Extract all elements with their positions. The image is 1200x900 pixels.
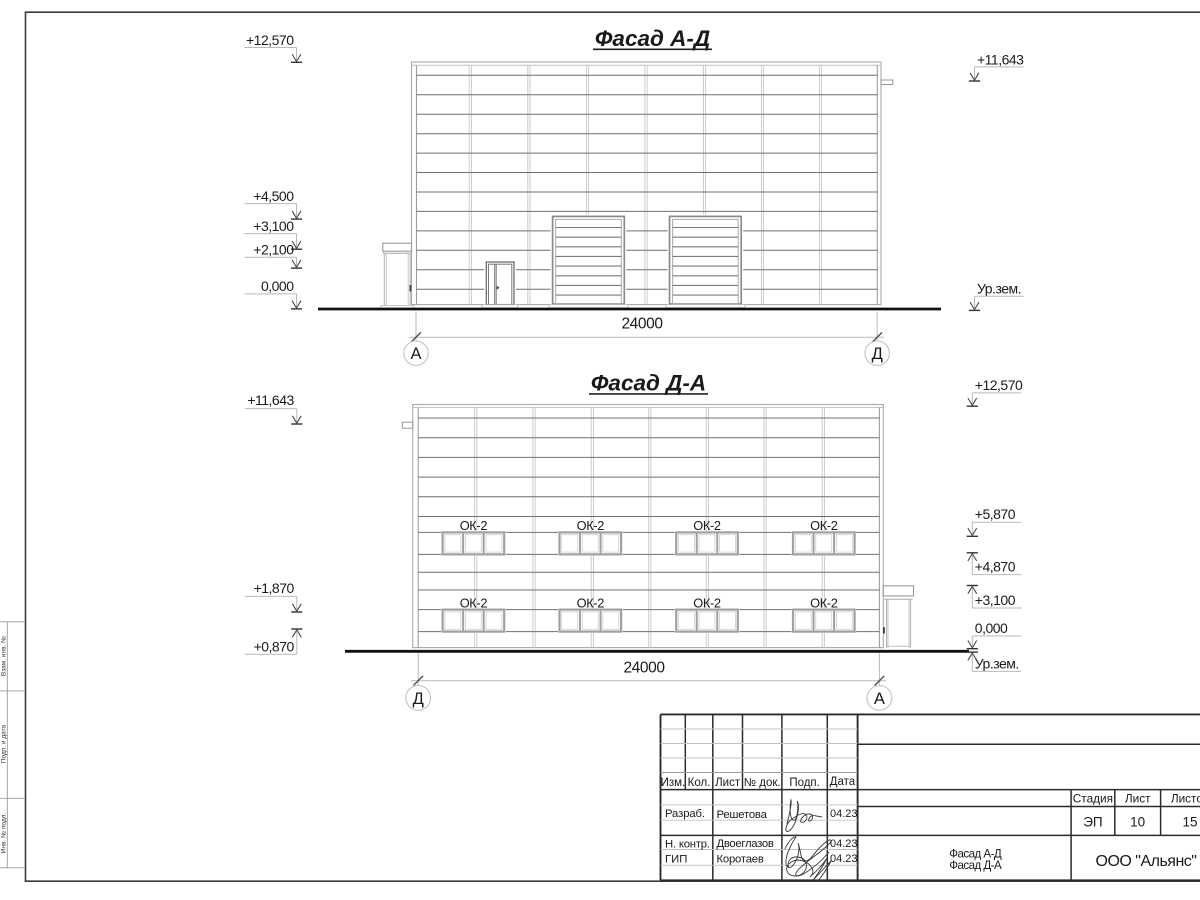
svg-text:+12,570: +12,570: [246, 32, 294, 48]
svg-text:Изм.: Изм.: [661, 777, 686, 789]
svg-text:+12,570: +12,570: [975, 377, 1023, 393]
svg-text:Ур.зем.: Ур.зем.: [977, 280, 1021, 296]
svg-text:Коротаев: Коротаев: [717, 853, 764, 865]
svg-text:ООО "Альянс": ООО "Альянс": [1096, 853, 1197, 870]
svg-text:0,000: 0,000: [261, 278, 294, 294]
svg-text:+11,643: +11,643: [977, 51, 1024, 67]
svg-text:Ур.зем.: Ур.зем.: [975, 655, 1019, 671]
svg-text:Подп. и дата: Подп. и дата: [1, 724, 8, 763]
svg-text:Взам. инв. №: Взам. инв. №: [1, 636, 8, 676]
svg-text:ОК-2: ОК-2: [693, 518, 721, 533]
svg-text:+4,500: +4,500: [253, 188, 294, 204]
svg-text:Д: Д: [872, 345, 883, 363]
svg-text:+3,100: +3,100: [975, 592, 1016, 608]
svg-text:+11,643: +11,643: [247, 392, 294, 408]
svg-text:Дата: Дата: [830, 776, 856, 788]
svg-text:ГИП: ГИП: [665, 853, 687, 865]
svg-text:Двоеглазов: Двоеглазов: [717, 838, 774, 850]
svg-text:+0,870: +0,870: [254, 639, 295, 655]
svg-text:ОК-2: ОК-2: [460, 596, 488, 611]
svg-text:А: А: [410, 345, 421, 363]
svg-text:ЭП: ЭП: [1083, 815, 1102, 830]
svg-text:Подп.: Подп.: [789, 777, 820, 789]
svg-text:Стадия: Стадия: [1073, 791, 1113, 805]
svg-text:04.23: 04.23: [830, 838, 858, 850]
svg-text:ОК-2: ОК-2: [460, 518, 488, 533]
svg-text:Н. контр.: Н. контр.: [665, 839, 710, 851]
svg-text:ОК-2: ОК-2: [810, 518, 838, 533]
svg-text:Фасад Д-А: Фасад Д-А: [949, 859, 1002, 872]
svg-text:Листов: Листов: [1171, 791, 1200, 805]
svg-text:Кол.: Кол.: [688, 777, 711, 789]
svg-text:Д: Д: [413, 690, 424, 708]
svg-text:Фасад А-Д: Фасад А-Д: [595, 26, 710, 51]
svg-text:+2,100: +2,100: [253, 242, 294, 258]
svg-text:ОК-2: ОК-2: [577, 518, 605, 533]
svg-text:ОК-2: ОК-2: [577, 596, 605, 611]
svg-text:Разраб.: Разраб.: [665, 808, 705, 820]
svg-text:Лист: Лист: [1125, 791, 1151, 805]
svg-text:+1,870: +1,870: [254, 580, 295, 596]
svg-text:15: 15: [1182, 815, 1197, 830]
svg-text:+5,870: +5,870: [975, 506, 1016, 522]
svg-text:ОК-2: ОК-2: [693, 596, 721, 611]
svg-text:Лист: Лист: [715, 777, 741, 789]
svg-text:24000: 24000: [621, 315, 663, 332]
svg-text:Фасад Д-А: Фасад Д-А: [591, 370, 706, 395]
svg-text:04.23: 04.23: [830, 853, 858, 865]
svg-text:ОК-2: ОК-2: [810, 596, 838, 611]
svg-text:+4,870: +4,870: [975, 559, 1016, 575]
svg-text:+3,100: +3,100: [253, 218, 294, 234]
svg-text:04.23: 04.23: [830, 808, 858, 820]
svg-text:0,000: 0,000: [975, 620, 1008, 636]
svg-text:10: 10: [1130, 815, 1145, 830]
svg-text:А: А: [874, 690, 885, 708]
svg-text:24000: 24000: [623, 659, 665, 676]
svg-text:Инв. № подл.: Инв. № подл.: [1, 813, 8, 854]
svg-text:Решетова: Решетова: [717, 809, 768, 821]
svg-text:№ док.: № док.: [744, 777, 781, 789]
